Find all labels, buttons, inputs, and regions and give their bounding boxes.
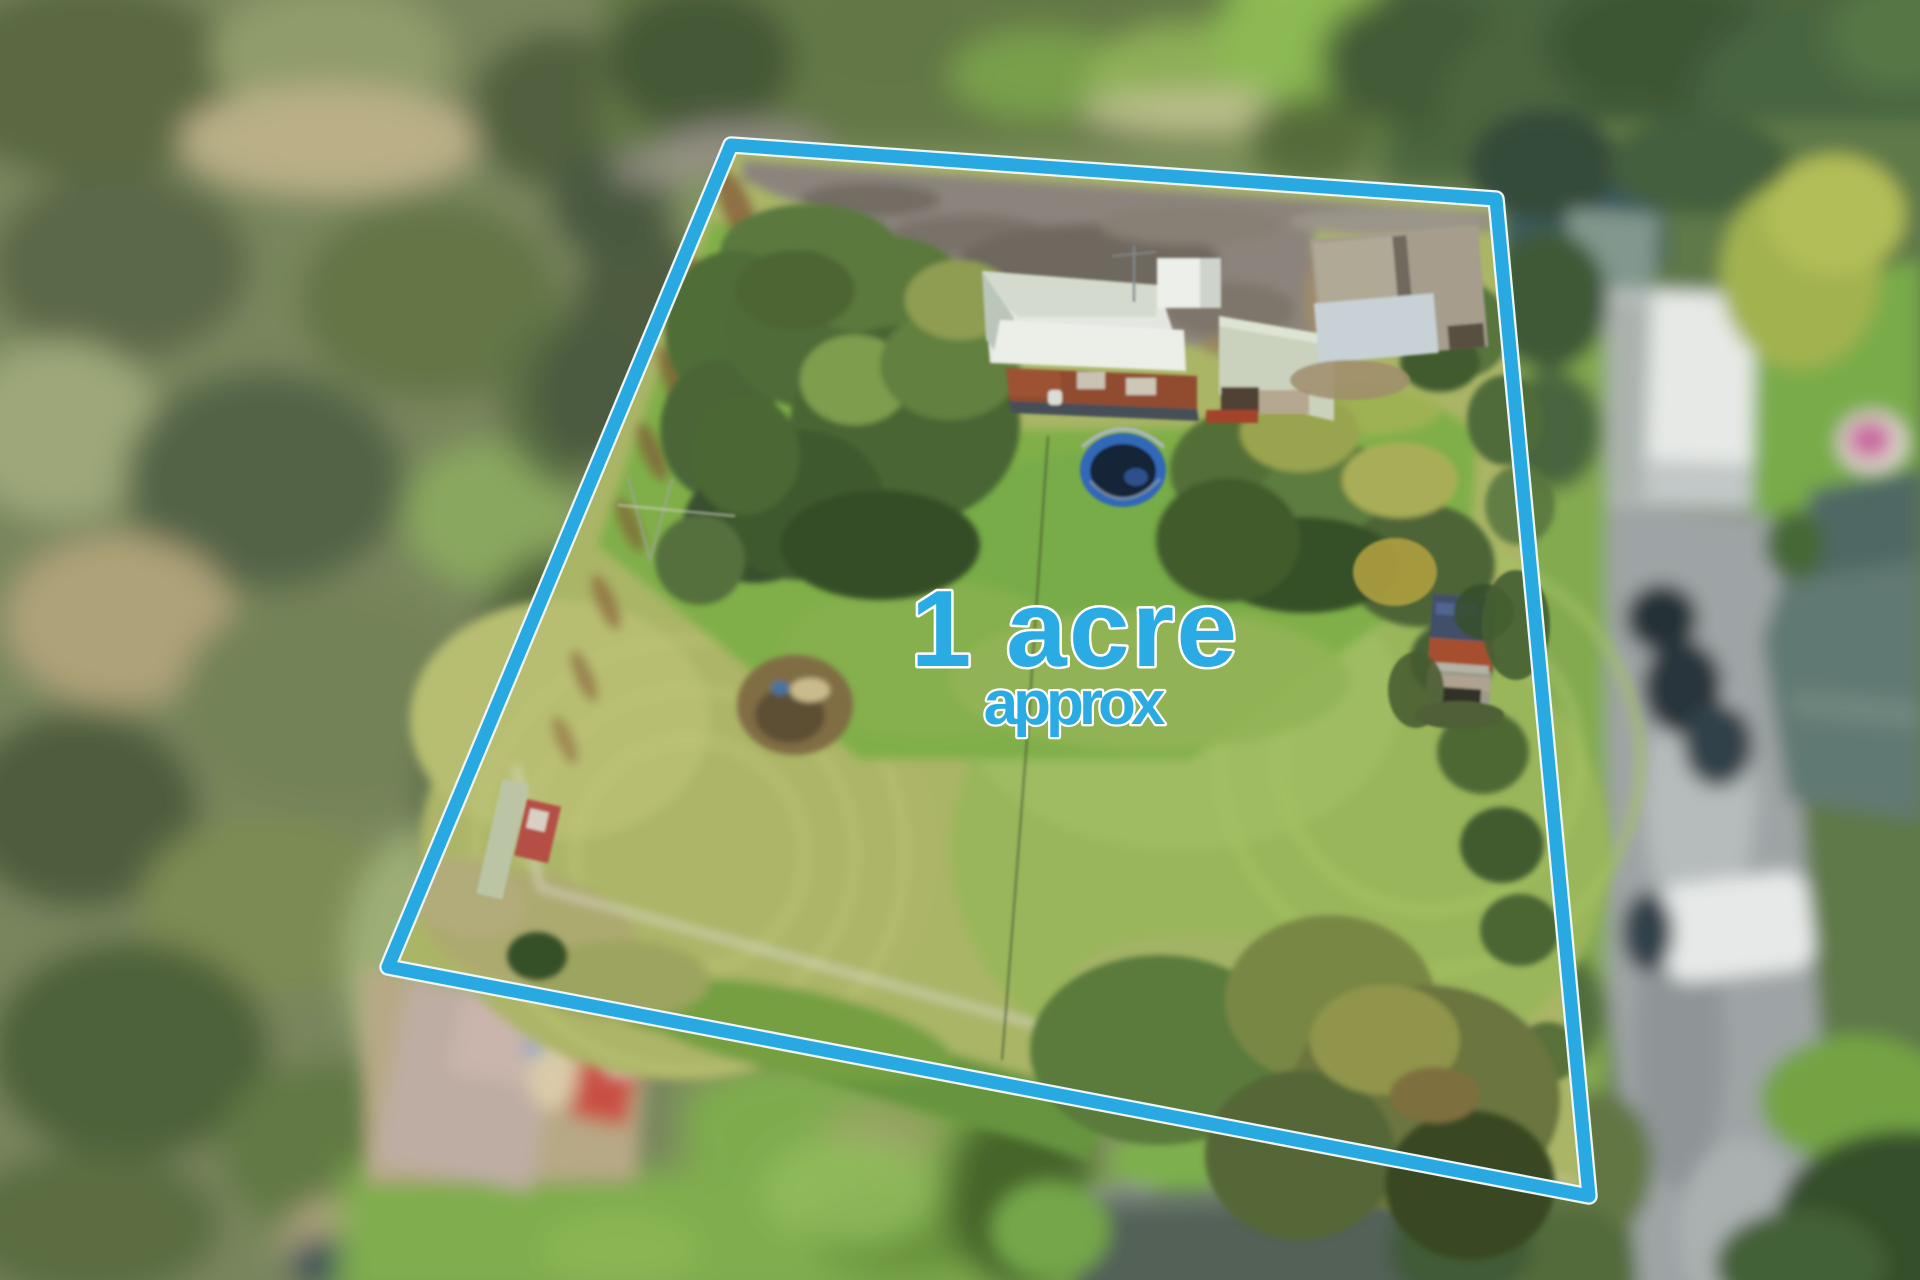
svg-text:approx: approx xyxy=(984,669,1166,738)
